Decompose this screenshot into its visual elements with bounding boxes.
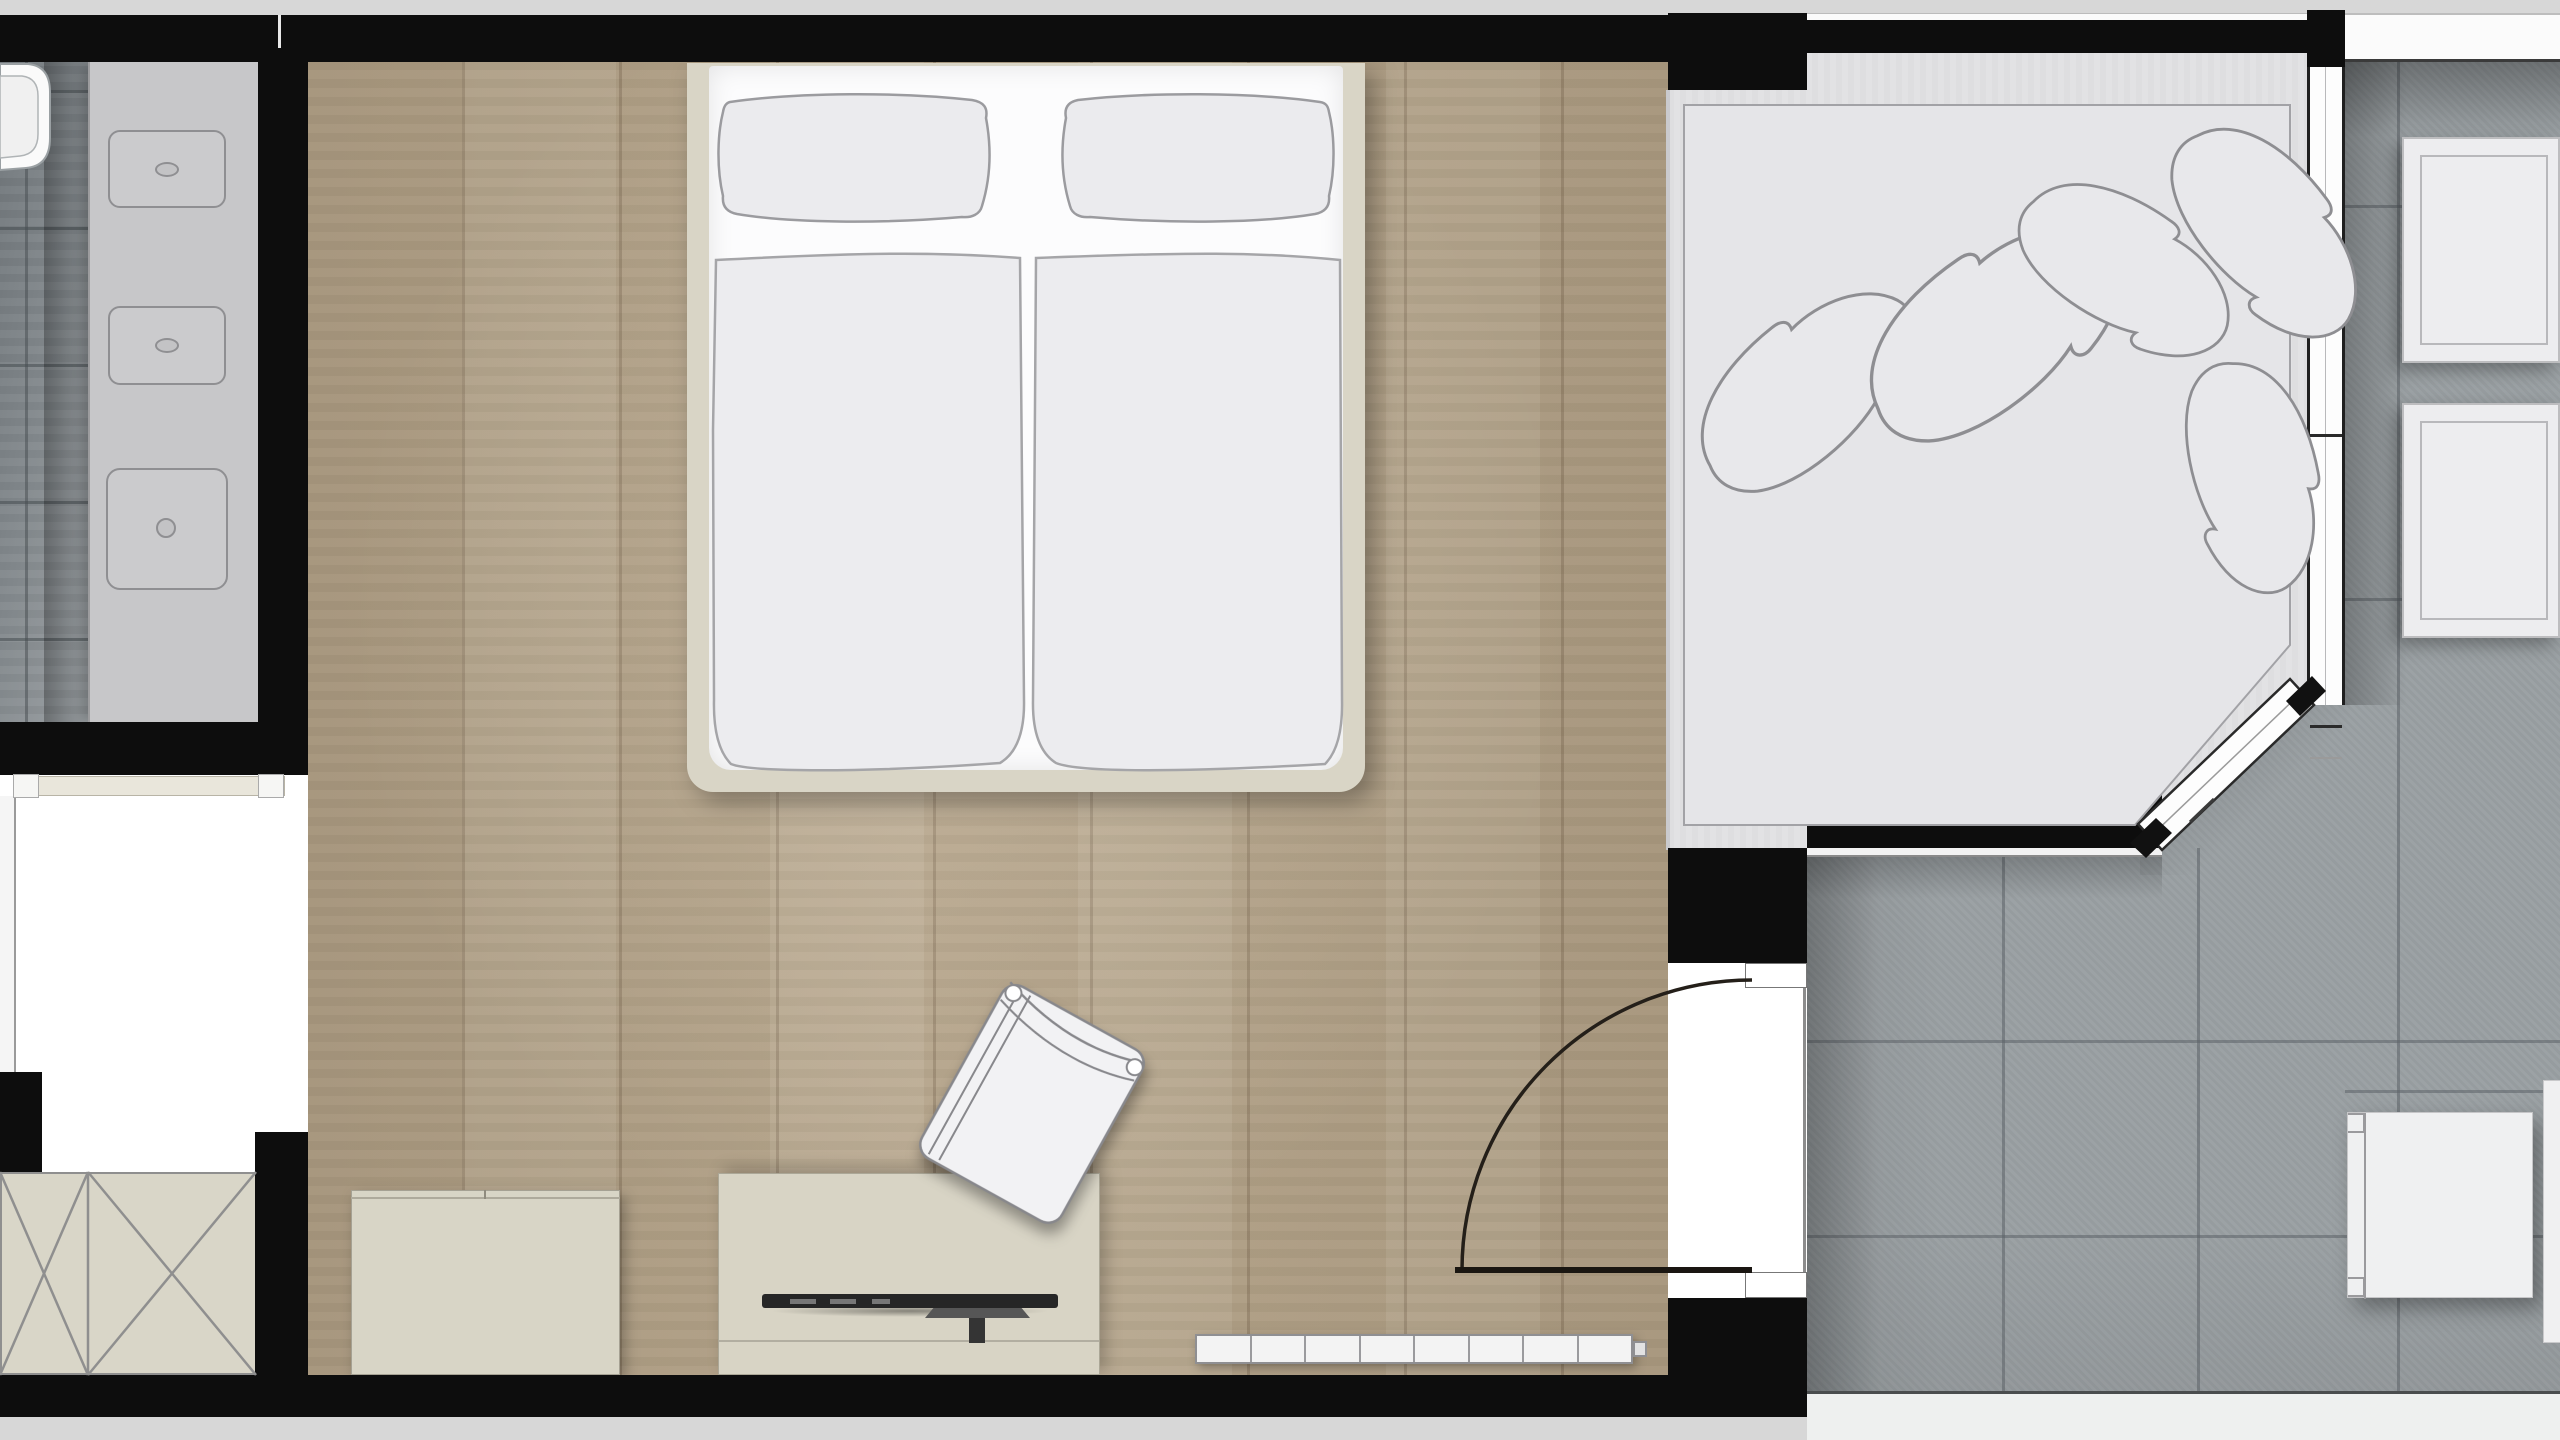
bed-linens [713,94,1342,770]
wardrobe-x-doors [0,1172,256,1375]
bed-pillow-right [1063,94,1334,221]
plan-overlay-graphics [0,0,2560,1440]
duvet-left [713,254,1024,771]
toilet [0,64,50,170]
bedroom-chair [915,980,1150,1229]
terrace-door [1455,980,1752,1270]
bed-pillow-left [718,94,989,221]
duvet-right [1033,254,1342,771]
door-swing-arc [1462,980,1752,1270]
floor-plan [0,0,2560,1440]
